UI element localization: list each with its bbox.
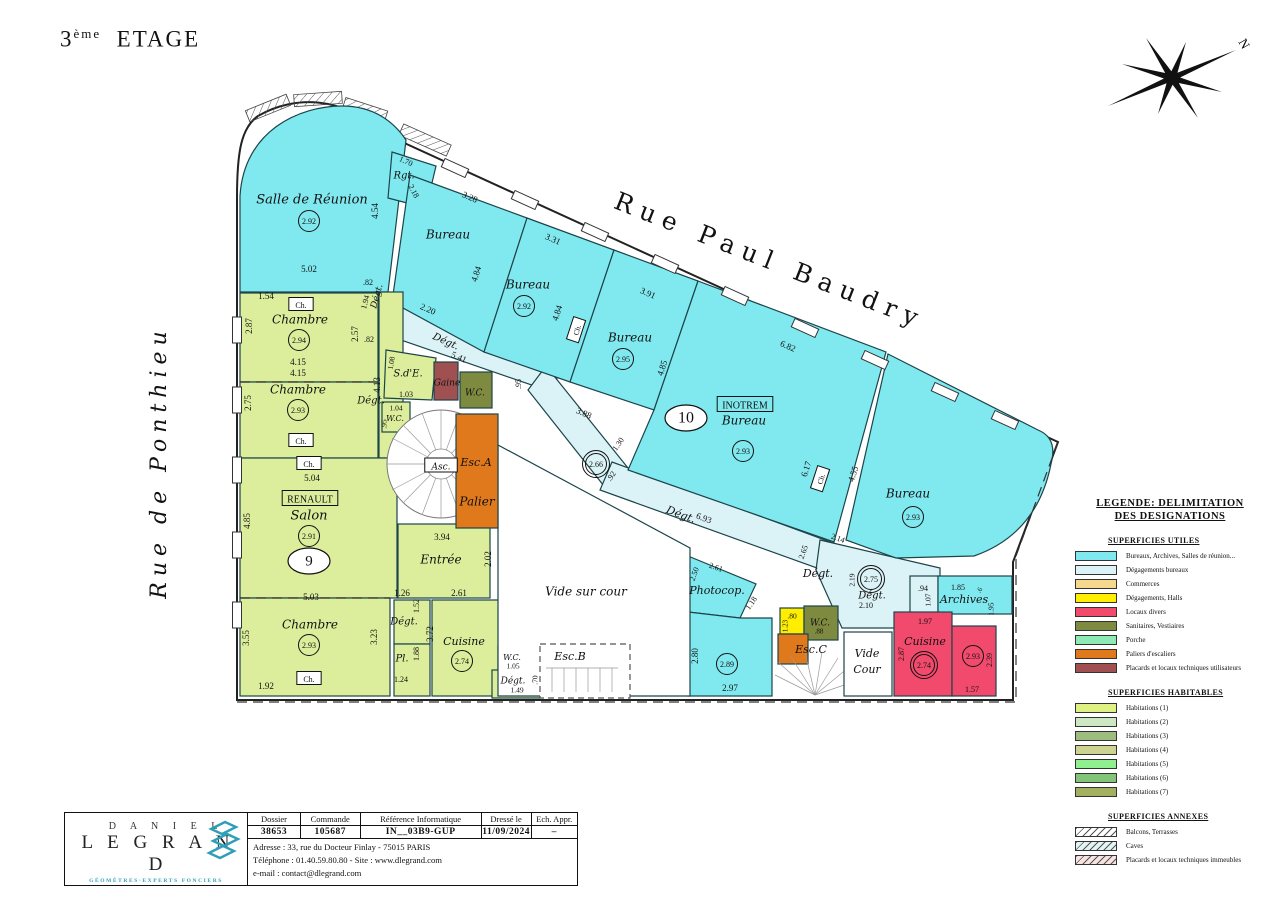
- legend-item: Placards et locaux techniques immeubles: [1063, 853, 1277, 867]
- svg-text:Ch.: Ch.: [303, 675, 314, 684]
- svg-text:2.80: 2.80: [690, 648, 700, 664]
- svg-text:2.93: 2.93: [966, 652, 980, 661]
- legend-item: Habitations (5): [1063, 757, 1277, 771]
- room-label: Esc.C: [794, 643, 827, 656]
- svg-text:W.C.: W.C.: [465, 389, 485, 399]
- dimension-label: 1.49: [510, 686, 523, 695]
- svg-text:2.10: 2.10: [859, 601, 873, 610]
- svg-text:Bureau: Bureau: [505, 278, 550, 292]
- room-label: Bureau: [607, 331, 652, 345]
- svg-text:2.74: 2.74: [455, 657, 469, 666]
- legend-item: Placards et locaux techniques utilisateu…: [1063, 661, 1277, 675]
- dimension-label: 2.61: [451, 588, 467, 598]
- legend-item-label: Habitations (2): [1126, 718, 1168, 726]
- svg-text:.95: .95: [380, 419, 389, 429]
- dimension-label: 4.85: [242, 513, 252, 529]
- room-label: Asc.: [425, 458, 457, 473]
- svg-text:2.91: 2.91: [302, 532, 316, 541]
- svg-text:9: 9: [305, 553, 313, 569]
- svg-text:2.75: 2.75: [243, 395, 253, 411]
- svg-text:2.92: 2.92: [517, 302, 531, 311]
- svg-text:2.74: 2.74: [917, 661, 931, 670]
- legend-swatch: [1075, 827, 1117, 837]
- svg-text:2.97: 2.97: [722, 683, 738, 693]
- legend-item: Commerces: [1063, 577, 1277, 591]
- svg-text:Ch.: Ch.: [303, 460, 314, 469]
- legend-item-label: Sanitaires, Vestiaires: [1126, 622, 1184, 630]
- title-block-info: DossierCommandeRéférence InformatiqueDre…: [248, 813, 577, 885]
- legend-item: Locaux divers: [1063, 605, 1277, 619]
- tb-value: IN__03B9-GUP: [361, 826, 482, 838]
- dimension-label: 1.97: [918, 617, 932, 626]
- legend-item: Bureaux, Archives, Salles de réunion...: [1063, 549, 1277, 563]
- svg-text:.82: .82: [363, 278, 373, 287]
- dimension-label: 1.57: [965, 685, 979, 694]
- logo-mark-icon: [205, 819, 241, 863]
- area-value: 10: [665, 405, 707, 431]
- svg-text:Gaine: Gaine: [434, 379, 461, 389]
- svg-text:3.72: 3.72: [425, 626, 435, 642]
- dimension-label: 1.52: [412, 599, 421, 613]
- legend-section-header: SUPERFICIES UTILES: [1108, 536, 1277, 545]
- dimension-label: 1.05: [506, 662, 519, 671]
- svg-text:Esc.C: Esc.C: [794, 643, 827, 656]
- legend-swatch: [1075, 731, 1117, 741]
- room-label: Esc.A: [459, 456, 491, 469]
- legend-swatch: [1075, 717, 1117, 727]
- svg-text:3.55: 3.55: [241, 630, 251, 646]
- svg-text:Vide sur cour: Vide sur cour: [545, 585, 628, 599]
- legend-swatch: [1075, 855, 1117, 865]
- tb-value: 105687: [301, 826, 361, 838]
- dimension-label: 2.19: [848, 573, 857, 586]
- legend-item-label: Habitations (7): [1126, 788, 1168, 796]
- dimension-label: Ch.: [289, 434, 313, 447]
- dimension-label: 1.88: [412, 647, 421, 661]
- room-label: Dégt.: [389, 617, 418, 628]
- legend-swatch: [1075, 607, 1117, 617]
- legend-item-label: Placards et locaux techniques utilisateu…: [1126, 664, 1241, 672]
- room-label: Cuisine: [443, 635, 485, 648]
- room-label: W.C.: [465, 389, 485, 399]
- legend-item-label: Dégagements, Halls: [1126, 594, 1182, 602]
- dimension-label: 1.26: [394, 588, 410, 598]
- dimension-label: 4.15: [290, 368, 306, 378]
- svg-text:1.23: 1.23: [782, 619, 790, 632]
- dimension-label: .70: [531, 675, 540, 685]
- svg-text:2.61: 2.61: [451, 588, 467, 598]
- dimension-label: 4.15: [290, 357, 306, 367]
- room-label: Chambre: [272, 313, 328, 327]
- legend-item-label: Balcons, Terrasses: [1126, 828, 1178, 836]
- dimension-label: 1.95: [987, 602, 996, 615]
- svg-text:1.52: 1.52: [412, 599, 421, 613]
- svg-text:Asc.: Asc.: [430, 463, 450, 473]
- esc-a-palier: [456, 414, 498, 528]
- dimension-label: 2.75: [243, 395, 253, 411]
- dimension-label: 1.07: [924, 593, 933, 606]
- svg-text:4.15: 4.15: [290, 357, 306, 367]
- svg-text:2.39: 2.39: [985, 653, 994, 667]
- svg-text:2.89: 2.89: [720, 660, 734, 669]
- svg-text:W.C.: W.C.: [503, 653, 521, 662]
- svg-text:Dégt.: Dégt.: [802, 567, 833, 580]
- phone-line: Téléphone : 01.40.59.80.80 - Site : www.…: [253, 854, 572, 867]
- title-block-headers: DossierCommandeRéférence InformatiqueDre…: [248, 813, 577, 826]
- room-label: W.C.: [503, 653, 521, 662]
- room-label: Entrée: [419, 553, 461, 567]
- legend-item-label: Habitations (5): [1126, 760, 1168, 768]
- legend-item-label: Habitations (6): [1126, 774, 1168, 782]
- room-label: Bureau: [885, 487, 930, 501]
- svg-text:1.49: 1.49: [510, 686, 523, 695]
- svg-text:2.93: 2.93: [302, 641, 316, 650]
- svg-text:2.75: 2.75: [864, 575, 878, 584]
- room-label: Pl.: [394, 654, 408, 665]
- svg-text:2.93: 2.93: [291, 406, 305, 415]
- company-logo: D A N I E L L E G R A N D GÉOMÈTRES·EXPE…: [65, 813, 248, 885]
- svg-text:Salon: Salon: [290, 509, 327, 524]
- tb-value: 11/09/2024: [482, 826, 532, 838]
- dimension-label: 2.80: [690, 648, 700, 664]
- dimension-label: 3.23: [369, 629, 379, 645]
- dimension-label: 5.02: [301, 264, 317, 274]
- room-label: Cour: [853, 663, 881, 676]
- legend-item-label: Locaux divers: [1126, 608, 1166, 616]
- svg-text:Bureau: Bureau: [425, 228, 470, 242]
- svg-text:2.87: 2.87: [897, 647, 906, 661]
- legend-swatch: [1075, 551, 1117, 561]
- legend-item: Habitations (4): [1063, 743, 1277, 757]
- legend-item-label: Dégagements bureaux: [1126, 566, 1188, 574]
- dimension-label: 2.10: [859, 601, 873, 610]
- svg-text:1.05: 1.05: [506, 662, 519, 671]
- dimension-label: Ch.: [297, 672, 321, 685]
- svg-text:W.C.: W.C.: [386, 414, 404, 423]
- dimension-label: 1.54: [258, 291, 274, 301]
- legend-section-header: SUPERFICIES ANNEXES: [1108, 812, 1277, 821]
- area-value: 9: [288, 548, 330, 574]
- svg-text:Ch.: Ch.: [295, 437, 306, 446]
- dimension-label: 1.85: [951, 583, 965, 592]
- legend-swatch: [1075, 787, 1117, 797]
- dimension-label: 5.03: [303, 592, 319, 602]
- svg-text:.70: .70: [531, 675, 540, 685]
- legend-item-label: Placards et locaux techniques immeubles: [1126, 856, 1241, 864]
- svg-text:Bureau: Bureau: [885, 487, 930, 501]
- legend-swatch: [1075, 565, 1117, 575]
- dimension-label: 2.87: [897, 647, 906, 661]
- legend-item: Porche: [1063, 633, 1277, 647]
- dimension-label: 2.57: [350, 326, 360, 342]
- svg-text:1.57: 1.57: [965, 685, 979, 694]
- north-arrow: N: [1108, 36, 1254, 118]
- tb-header-commande: Commande: [301, 813, 361, 825]
- dimension-label: Ch.: [289, 298, 313, 311]
- tb-header-r-f-rence-informatique: Référence Informatique: [361, 813, 482, 825]
- legend-item: Habitations (3): [1063, 729, 1277, 743]
- svg-text:2.87: 2.87: [244, 318, 254, 334]
- dimension-label: .95: [514, 379, 523, 389]
- legend-item: Dégagements, Halls: [1063, 591, 1277, 605]
- tb-value: 38653: [248, 826, 301, 838]
- svg-text:.95: .95: [514, 379, 523, 389]
- dimension-label: 4.54: [370, 203, 380, 219]
- svg-text:2.94: 2.94: [292, 336, 306, 345]
- svg-text:.80: .80: [787, 612, 797, 621]
- svg-text:1.24: 1.24: [394, 675, 408, 684]
- room-label: Cuisine: [904, 635, 946, 648]
- legend-item: Dégagements bureaux: [1063, 563, 1277, 577]
- svg-text:Ch.: Ch.: [295, 301, 306, 310]
- dimension-label: 3.55: [241, 630, 251, 646]
- tb-header-dress-le: Dressé le: [482, 813, 532, 825]
- svg-text:1.97: 1.97: [918, 617, 932, 626]
- svg-text:Salle de Réunion: Salle de Réunion: [256, 193, 368, 208]
- svg-text:1.26: 1.26: [394, 588, 410, 598]
- legend-item-label: Habitations (1): [1126, 704, 1168, 712]
- legend-item-label: Habitations (4): [1126, 746, 1168, 754]
- legend-swatch: [1075, 773, 1117, 783]
- room-label: Bureau: [425, 228, 470, 242]
- svg-text:4.54: 4.54: [370, 203, 380, 219]
- svg-text:2.02: 2.02: [483, 551, 493, 567]
- legend-item: Sanitaires, Vestiaires: [1063, 619, 1277, 633]
- room-label: Chambre: [282, 618, 338, 632]
- tb-header-dossier: Dossier: [248, 813, 301, 825]
- svg-text:1.07: 1.07: [924, 593, 933, 606]
- svg-text:Chambre: Chambre: [282, 618, 338, 632]
- svg-text:Cuisine: Cuisine: [443, 635, 485, 648]
- legend-item-label: Commerces: [1126, 580, 1159, 588]
- svg-text:Rgt.: Rgt.: [392, 171, 414, 182]
- legend-swatch: [1075, 649, 1117, 659]
- room-label: Chambre: [270, 383, 326, 397]
- dimension-label: 3.94: [434, 532, 450, 542]
- legend-title: LEGENDE: DELIMITATION DES DESIGNATIONS: [1063, 497, 1277, 523]
- svg-text:Esc.B: Esc.B: [553, 650, 585, 663]
- dimension-label: 1.24: [394, 675, 408, 684]
- room-label: Bureau: [721, 414, 766, 428]
- svg-text:Entrée: Entrée: [419, 553, 461, 567]
- email-line: e-mail : contact@dlegrand.com: [253, 867, 572, 880]
- svg-text:Palier: Palier: [458, 495, 495, 509]
- legend-item: Paliers d'escaliers: [1063, 647, 1277, 661]
- title-block-values: 38653105687IN__03B9-GUP11/09/2024–: [248, 826, 577, 839]
- room-label: Salle de Réunion: [256, 193, 368, 208]
- legend-item: Habitations (1): [1063, 701, 1277, 715]
- svg-text:.94: .94: [918, 584, 928, 593]
- svg-text:RENAULT: RENAULT: [287, 494, 333, 505]
- svg-text:S.d'E.: S.d'E.: [393, 369, 422, 380]
- dimension-label: .82: [363, 278, 373, 287]
- svg-text:2.95: 2.95: [616, 355, 630, 364]
- room-label: Salon: [290, 509, 327, 524]
- dimension-label: 1.04: [389, 404, 402, 413]
- dimension-label: .94: [918, 584, 928, 593]
- dimension-label: .80: [787, 612, 797, 621]
- room-label: Esc.B: [553, 650, 585, 663]
- svg-text:2.57: 2.57: [350, 326, 360, 342]
- legend-item: Habitations (6): [1063, 771, 1277, 785]
- svg-text:Pl.: Pl.: [394, 654, 408, 665]
- svg-text:2.93: 2.93: [736, 447, 750, 456]
- dimension-label: 4.13: [372, 377, 382, 393]
- svg-text:5.02: 5.02: [301, 264, 317, 274]
- svg-text:2.66: 2.66: [589, 460, 603, 469]
- room-cuisine-green: [432, 600, 500, 696]
- dimension-label: .82: [364, 335, 374, 344]
- svg-text:Cour: Cour: [853, 663, 881, 676]
- dimension-label: 1.23: [782, 619, 790, 632]
- svg-text:4.13: 4.13: [372, 377, 382, 393]
- legend-swatch: [1075, 635, 1117, 645]
- legend-swatch: [1075, 841, 1117, 851]
- svg-text:5.03: 5.03: [303, 592, 319, 602]
- svg-text:10: 10: [678, 410, 694, 427]
- dimension-label: 3.72: [425, 626, 435, 642]
- tb-value: –: [532, 826, 578, 838]
- svg-text:.82: .82: [364, 335, 374, 344]
- address-line: Adresse : 33, rue du Docteur Finlay - 75…: [253, 841, 572, 854]
- legend-item-label: Bureaux, Archives, Salles de réunion...: [1126, 552, 1235, 560]
- svg-text:Photocop.: Photocop.: [688, 584, 744, 597]
- svg-text:2.92: 2.92: [302, 217, 316, 226]
- legend-section: SUPERFICIES HABITABLESHabitations (1)Hab…: [1063, 688, 1277, 799]
- room-label: Vide sur cour: [545, 585, 628, 599]
- svg-text:1.03: 1.03: [399, 390, 413, 399]
- dimension-label: Ch.: [297, 457, 321, 470]
- legend-item-label: Habitations (3): [1126, 732, 1168, 740]
- dimension-label: .88: [815, 628, 824, 636]
- legend-item: Habitations (2): [1063, 715, 1277, 729]
- svg-text:Chambre: Chambre: [270, 383, 326, 397]
- north-n-label: N: [1236, 36, 1254, 52]
- svg-text:2.19: 2.19: [848, 573, 857, 586]
- svg-text:.88: .88: [815, 628, 824, 636]
- dimension-label: 2.97: [722, 683, 738, 693]
- svg-text:3.94: 3.94: [434, 532, 450, 542]
- legend-swatch: [1075, 579, 1117, 589]
- title-block: D A N I E L L E G R A N D GÉOMÈTRES·EXPE…: [64, 812, 578, 886]
- room-label: Photocop.: [688, 584, 744, 597]
- svg-text:Vide: Vide: [855, 647, 880, 660]
- svg-text:4.85: 4.85: [242, 513, 252, 529]
- legend-section: SUPERFICIES UTILESBureaux, Archives, Sal…: [1063, 536, 1277, 675]
- logo-subtitle: GÉOMÈTRES·EXPERTS FONCIERS: [65, 878, 247, 884]
- legend-item: Balcons, Terrasses: [1063, 825, 1277, 839]
- legend-swatch: [1075, 663, 1117, 673]
- legend-swatch: [1075, 621, 1117, 631]
- svg-text:1.54: 1.54: [258, 291, 274, 301]
- dimension-label: 5.04: [304, 473, 320, 483]
- room-label: Gaine: [434, 379, 461, 389]
- svg-text:Cuisine: Cuisine: [904, 635, 946, 648]
- svg-text:Dégt.: Dégt.: [356, 396, 385, 407]
- legend-item: Caves: [1063, 839, 1277, 853]
- title-block-address: Adresse : 33, rue du Docteur Finlay - 75…: [248, 839, 577, 880]
- dimension-label: 1.92: [258, 681, 274, 691]
- svg-text:1.04: 1.04: [389, 404, 402, 413]
- dimension-label: 1.03: [399, 390, 413, 399]
- svg-text:3.23: 3.23: [369, 629, 379, 645]
- tb-header-ech-appr-: Ech. Appr.: [532, 813, 578, 825]
- svg-text:INOTREM: INOTREM: [722, 400, 768, 411]
- room-label: W.C.: [386, 414, 404, 423]
- svg-text:Bureau: Bureau: [721, 414, 766, 428]
- svg-text:Bureau: Bureau: [607, 331, 652, 345]
- room-label: Palier: [458, 495, 495, 509]
- room-label: Dégt.: [802, 567, 833, 580]
- legend-item-label: Porche: [1126, 636, 1145, 644]
- dimension-label: 2.39: [985, 653, 994, 667]
- legend-item-label: Paliers d'escaliers: [1126, 650, 1176, 658]
- legend-swatch: [1075, 745, 1117, 755]
- dimension-label: .95: [380, 419, 389, 429]
- svg-text:4.15: 4.15: [290, 368, 306, 378]
- room-label: Rgt.: [392, 171, 414, 182]
- svg-text:1.95: 1.95: [987, 602, 996, 615]
- svg-text:5.04: 5.04: [304, 473, 320, 483]
- room-label: Vide: [855, 647, 880, 660]
- legend-section: SUPERFICIES ANNEXESBalcons, TerrassesCav…: [1063, 812, 1277, 867]
- legend-item: Habitations (7): [1063, 785, 1277, 799]
- legend-swatch: [1075, 593, 1117, 603]
- room-label: S.d'E.: [393, 369, 422, 380]
- legend: LEGENDE: DELIMITATION DES DESIGNATIONS S…: [1063, 497, 1277, 867]
- legend-swatch: [1075, 703, 1117, 713]
- svg-text:1.85: 1.85: [951, 583, 965, 592]
- room-label: Bureau: [505, 278, 550, 292]
- svg-text:1.92: 1.92: [258, 681, 274, 691]
- legend-swatch: [1075, 759, 1117, 769]
- svg-text:1.88: 1.88: [412, 647, 421, 661]
- svg-text:2.93: 2.93: [906, 513, 920, 522]
- svg-text:Dégt.: Dégt.: [389, 617, 418, 628]
- room-label: Dégt.: [356, 396, 385, 407]
- legend-section-header: SUPERFICIES HABITABLES: [1108, 688, 1277, 697]
- legend-item-label: Caves: [1126, 842, 1143, 850]
- dimension-label: 2.87: [244, 318, 254, 334]
- floor-plan-sheet: 3ème ETAGE Rue Paul Baudry Rue de Ponthi…: [0, 0, 1280, 904]
- dimension-label: 2.02: [483, 551, 493, 567]
- svg-text:Esc.A: Esc.A: [459, 456, 491, 469]
- svg-text:Chambre: Chambre: [272, 313, 328, 327]
